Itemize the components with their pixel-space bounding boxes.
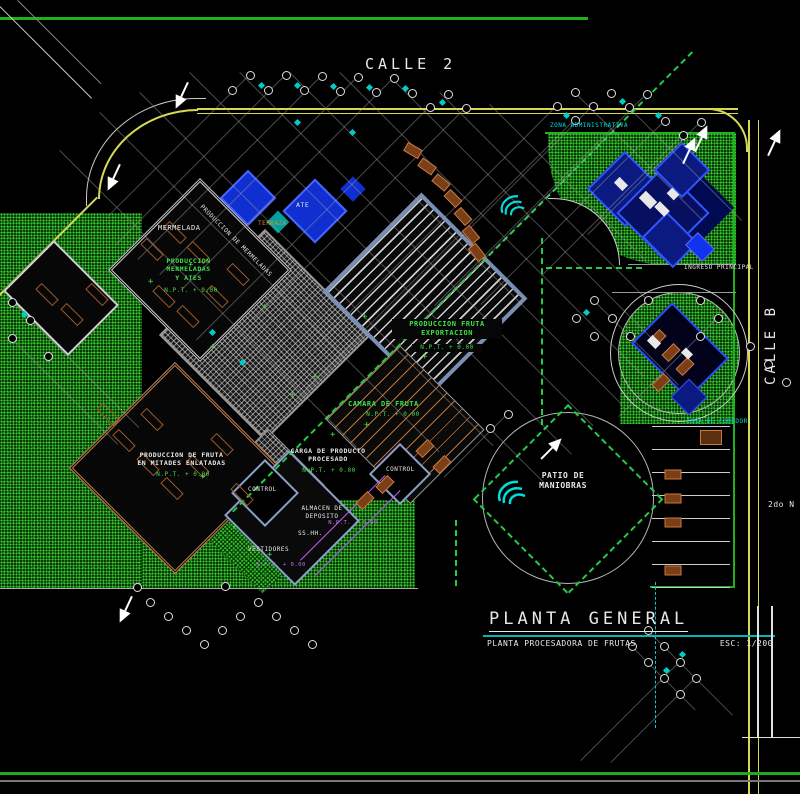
drawing-scale: ESC: 1/200 [720, 639, 773, 649]
arrowtail [767, 141, 776, 156]
room-label-vestidores: VESTIDORES [248, 546, 289, 554]
drawing-subtitle: PLANTA PROCESADORA DE FRUTAS [487, 639, 636, 649]
axis-bubble [590, 332, 599, 341]
room-label-mermelada: MERMELADA [158, 224, 200, 233]
axis-bubble [282, 71, 291, 80]
axis-bubble [218, 626, 227, 635]
arrowtail [112, 164, 121, 179]
car [665, 494, 682, 504]
axis-bubble [426, 103, 435, 112]
axis-bubble [571, 88, 580, 97]
arrowtail [124, 596, 133, 611]
axis-bubble [146, 598, 155, 607]
elevation-cross: + [312, 372, 317, 382]
axis-bubble [254, 598, 263, 607]
axis-bubble [643, 90, 652, 99]
title-block: PLANTA GENERAL PLANTA PROCESADORA DE FRU… [483, 608, 775, 650]
arrowhead [114, 608, 130, 625]
axis-bubble [444, 90, 453, 99]
direction-arrow-icon [114, 593, 138, 625]
axis-bubble [692, 674, 701, 683]
site-boundary-top [0, 17, 588, 20]
npt-label: N.P.T. + 0.00 [358, 411, 428, 419]
axis-bubble [660, 674, 669, 683]
axis-tick [679, 651, 686, 658]
axis-bubble [644, 296, 653, 305]
room-label-control-a: CONTROL [248, 486, 277, 494]
axis-bubble [782, 378, 791, 387]
axis-bubble [8, 334, 17, 343]
axis-bubble [408, 89, 417, 98]
axis-bubble [504, 410, 513, 419]
axis-bubble [607, 89, 616, 98]
axis-bubble [625, 103, 634, 112]
axis-bubble [676, 690, 685, 699]
axis-bubble [486, 424, 495, 433]
zone-label-nivel: 2do N [768, 500, 795, 510]
dashed-vertical [541, 238, 543, 425]
room-label-control-b: CONTROL [386, 466, 415, 474]
title-underline [483, 635, 775, 637]
frame-horizontal [742, 737, 800, 738]
elevation-cross: + [422, 352, 427, 362]
axis-bubble [696, 296, 705, 305]
axis-tick [439, 99, 446, 106]
axis-bubble [300, 86, 309, 95]
room-label-camara: CAMARA DE FRUTA [348, 400, 419, 409]
elevation-cross: + [232, 522, 237, 532]
npt-label: N.P.T. + 0.00 [412, 344, 482, 352]
dashed-vertical-south [455, 520, 457, 586]
car [665, 566, 682, 576]
axis-bubble [236, 612, 245, 621]
npt-label: N.P.T. + 0.00 [148, 471, 218, 479]
car [665, 518, 682, 528]
room-label-preparacion: PRODUCCION DE FRUTA EN MITADES ENLATADAS [134, 451, 229, 468]
axis-bubble [318, 72, 327, 81]
room-label-almacen: ALMACEN DE DEPOSITO [292, 505, 352, 521]
axis-bubble [133, 583, 142, 592]
axis-bubble [246, 71, 255, 80]
axis-bubble [336, 87, 345, 96]
room-label-exportacion: PRODUCCION FRUTA EXPORTACION [392, 319, 502, 339]
elevation-cross: + [362, 312, 367, 322]
axis-bubble [164, 612, 173, 621]
car [431, 173, 450, 192]
elevation-cross: + [330, 430, 335, 440]
room-label-carga: CARGA DE PRODUCTO PROCESADO [283, 447, 373, 464]
room-label-prod-mermeladas: PRODUCCION MERMELADAS Y ATES [146, 257, 231, 282]
axis-tick [294, 119, 301, 126]
dashed-cyan-section [655, 582, 656, 728]
street-label-calle2: CALLE 2 [365, 55, 456, 75]
frame-vertical-a [757, 606, 759, 737]
arrowtail [694, 137, 703, 152]
frame-vertical-b [771, 606, 773, 737]
axis-bubble [26, 316, 35, 325]
boundary-site-bottom [0, 588, 418, 589]
axis-bubble [661, 117, 670, 126]
axis-tick [349, 129, 356, 136]
frame-bottom-gray [0, 780, 800, 782]
street-label-calleb: CALLE B [762, 290, 780, 400]
axis-tick [583, 309, 590, 316]
dim-line-corner-b [17, 0, 101, 84]
axis-bubble [746, 342, 755, 351]
car [403, 142, 423, 159]
room-label-terraza: TERRAZA [258, 220, 287, 228]
axis-bubble [572, 314, 581, 323]
frame-bottom-green [0, 772, 800, 775]
arrowtail [180, 82, 189, 97]
curb-corner-right [706, 108, 748, 152]
direction-arrow-icon [762, 127, 786, 159]
zone-label-patio: PATIO DE MANIOBRAS [518, 471, 608, 492]
axis-bubble [372, 88, 381, 97]
elevation-cross: + [364, 420, 369, 430]
axis-bubble [608, 314, 617, 323]
axis-bubble [182, 626, 191, 635]
drawing-title: PLANTA GENERAL [489, 608, 688, 632]
room-label-ate: ATE [296, 201, 309, 209]
npt-label-alt: N.P.T. + 0.00 [322, 520, 384, 527]
axis-bubble [272, 612, 281, 621]
elevation-cross: + [210, 342, 215, 352]
cad-site-plan: CALLE 2 CALLE B ZONA ADMINISTRATIVA INGR… [0, 0, 800, 794]
dashed-horizontal [546, 267, 642, 269]
axis-bubble [626, 332, 635, 341]
room-label-sshh: SS.HH. [298, 530, 323, 538]
axis-bubble [644, 658, 653, 667]
axis-bubble [8, 298, 17, 307]
terrace-pool-d [340, 176, 365, 201]
car [417, 158, 437, 176]
elevation-cross: + [262, 302, 267, 312]
axis-bubble [676, 658, 685, 667]
car [665, 470, 682, 480]
axis-bubble [354, 73, 363, 82]
npt-label: N.P.T. + 0.00 [294, 467, 364, 475]
axis-bubble [714, 314, 723, 323]
elevation-cross: + [290, 390, 295, 400]
axis-bubble [697, 118, 706, 127]
arrowhead [769, 127, 785, 144]
axis-bubble [290, 626, 299, 635]
axis-bubble [390, 74, 399, 83]
axis-bubble [679, 131, 688, 140]
zone-label-administrativa: ZONA ADMINISTRATIVA [550, 122, 628, 130]
arrowtail [682, 149, 691, 164]
axis-bubble [228, 86, 237, 95]
zone-label-comedor: ZONA DE COMEDOR [686, 418, 748, 426]
axis-bubble [589, 102, 598, 111]
axis-bubble [696, 332, 705, 341]
parking-gate [700, 430, 722, 445]
axis-bubble [221, 582, 230, 591]
axis-bubble [462, 104, 471, 113]
curb-calleb-a [748, 120, 750, 794]
parking-stalls [652, 426, 730, 588]
npt-label-alt: N.P.T. + 0.00 [250, 562, 312, 569]
npt-label: N.P.T. + 0.00 [156, 287, 226, 295]
axis-bubble [660, 642, 669, 651]
axis-bubble [553, 102, 562, 111]
axis-bubble [200, 640, 209, 649]
zone-label-ingreso: INGRESO PRINCIPAL [684, 264, 754, 272]
axis-bubble [308, 640, 317, 649]
axis-bubble [44, 352, 53, 361]
axis-bubble [590, 296, 599, 305]
axis-bubble [264, 86, 273, 95]
